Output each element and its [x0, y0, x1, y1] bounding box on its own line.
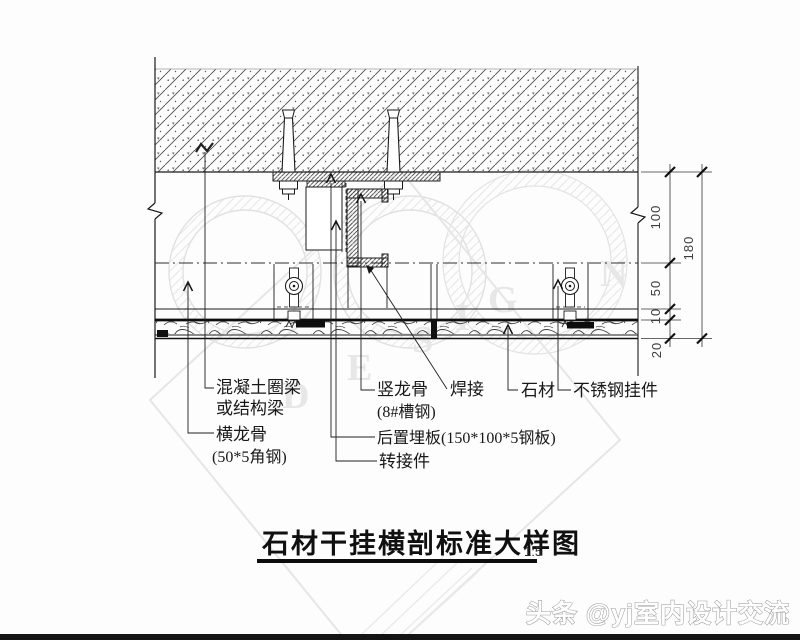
dim-10: 10: [648, 308, 663, 324]
bottom-bar: [0, 634, 800, 640]
adapter-bracket: [306, 181, 346, 252]
label-concrete-beam-2: 或结构梁: [216, 399, 284, 418]
stone-joint: [431, 320, 437, 338]
footer-watermark-text: 头条 @yj室内设计交流: [526, 599, 790, 628]
label-embed-plate: 后置埋板(150*100*5钢板): [377, 429, 556, 447]
dimension-chain: 100 50 10 20 180: [641, 164, 712, 358]
cad-detail-screenshot: D E S I G N: [0, 0, 800, 640]
label-concrete-beam-1: 混凝土圈梁: [216, 378, 301, 397]
detail-drawing-canvas: D E S I G N: [0, 0, 800, 640]
label-vertical-keel-1: 竖龙骨: [377, 380, 428, 399]
title-underline: [257, 559, 537, 563]
channel-web: [347, 189, 358, 266]
leader-concrete-beam: [205, 152, 214, 388]
label-horizontal-keel-1: 横龙骨: [216, 425, 267, 444]
label-adapter: 转接件: [379, 452, 430, 471]
watermark-letter-g: G: [488, 279, 518, 321]
hanger-pin: [296, 321, 325, 328]
channel-bottom-lip: [382, 254, 388, 267]
channel-top-lip: [382, 189, 388, 202]
drawing-scale: 1:5: [524, 544, 542, 559]
label-stone: 石材: [521, 381, 555, 400]
watermark-letter-e: E: [347, 347, 372, 389]
label-horizontal-keel-2: (50*5角钢): [212, 448, 287, 466]
label-stainless-hanger: 不锈钢挂件: [573, 381, 658, 400]
label-vertical-keel-2: (8#槽钢): [377, 403, 436, 421]
drawing-title-block: 石材干挂横剖标准大样图 1:5: [257, 528, 581, 563]
dim-50: 50: [648, 280, 663, 296]
watermark-letter-n: N: [600, 253, 627, 295]
stone-panel-hatch: [155, 322, 638, 335]
embed-plate: [273, 172, 440, 181]
hanger-pin: [567, 322, 594, 329]
label-weld: 焊接: [450, 380, 484, 399]
dim-180-total: 180: [681, 236, 696, 261]
dim-100: 100: [648, 205, 663, 230]
watermark-corner-hatch: [362, 556, 478, 640]
callout-labels: 混凝土圈梁 或结构梁 横龙骨 (50*5角钢) 竖龙骨 (8#槽钢) 焊接 石材…: [212, 378, 658, 471]
stone-joint-left-edge: [157, 330, 168, 337]
dim-20: 20: [649, 342, 664, 358]
